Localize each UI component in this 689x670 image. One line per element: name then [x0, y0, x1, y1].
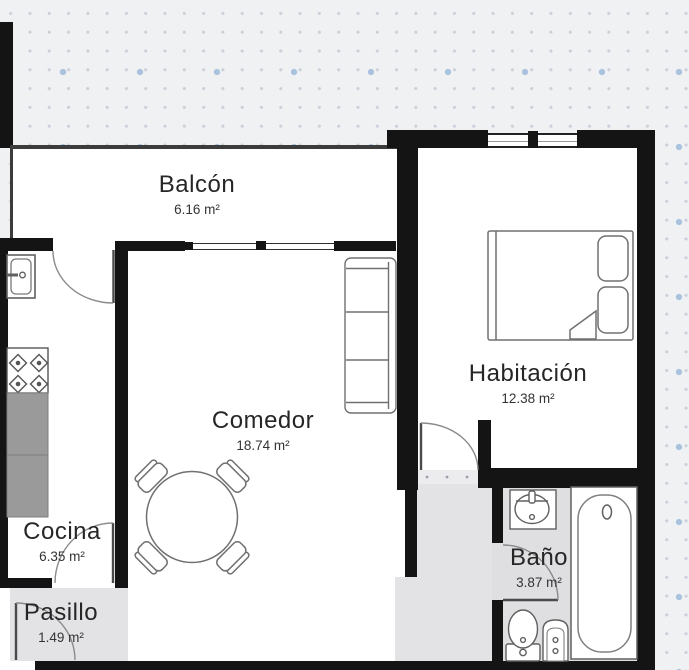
drain: [603, 505, 612, 519]
sofa-icon: [345, 258, 396, 413]
bathtub-icon: [571, 487, 637, 659]
door-bathroom: [503, 545, 558, 600]
bidet-icon: [543, 620, 568, 661]
toilet-icon: [506, 610, 540, 661]
furniture-layer: [0, 0, 689, 670]
door-entrance: [16, 603, 75, 660]
floorplan-canvas: Balcón 6.16 m² Comedor 18.74 m² Habitaci…: [0, 0, 689, 670]
kitchen-sink-icon: [7, 255, 35, 298]
kitchen-counter: [7, 393, 48, 517]
bathroom-sink-icon: [510, 490, 556, 529]
bed-icon: [488, 231, 633, 340]
pillow-icon: [598, 287, 628, 333]
threshold-dots: [426, 476, 469, 479]
stove-icon: [7, 348, 48, 393]
dining-table-icon: [132, 457, 251, 576]
door-cocina-balcony: [53, 250, 114, 303]
pillow-icon: [598, 236, 628, 281]
door-bedroom: [421, 423, 478, 470]
door-cocina-pasillo: [55, 523, 113, 583]
